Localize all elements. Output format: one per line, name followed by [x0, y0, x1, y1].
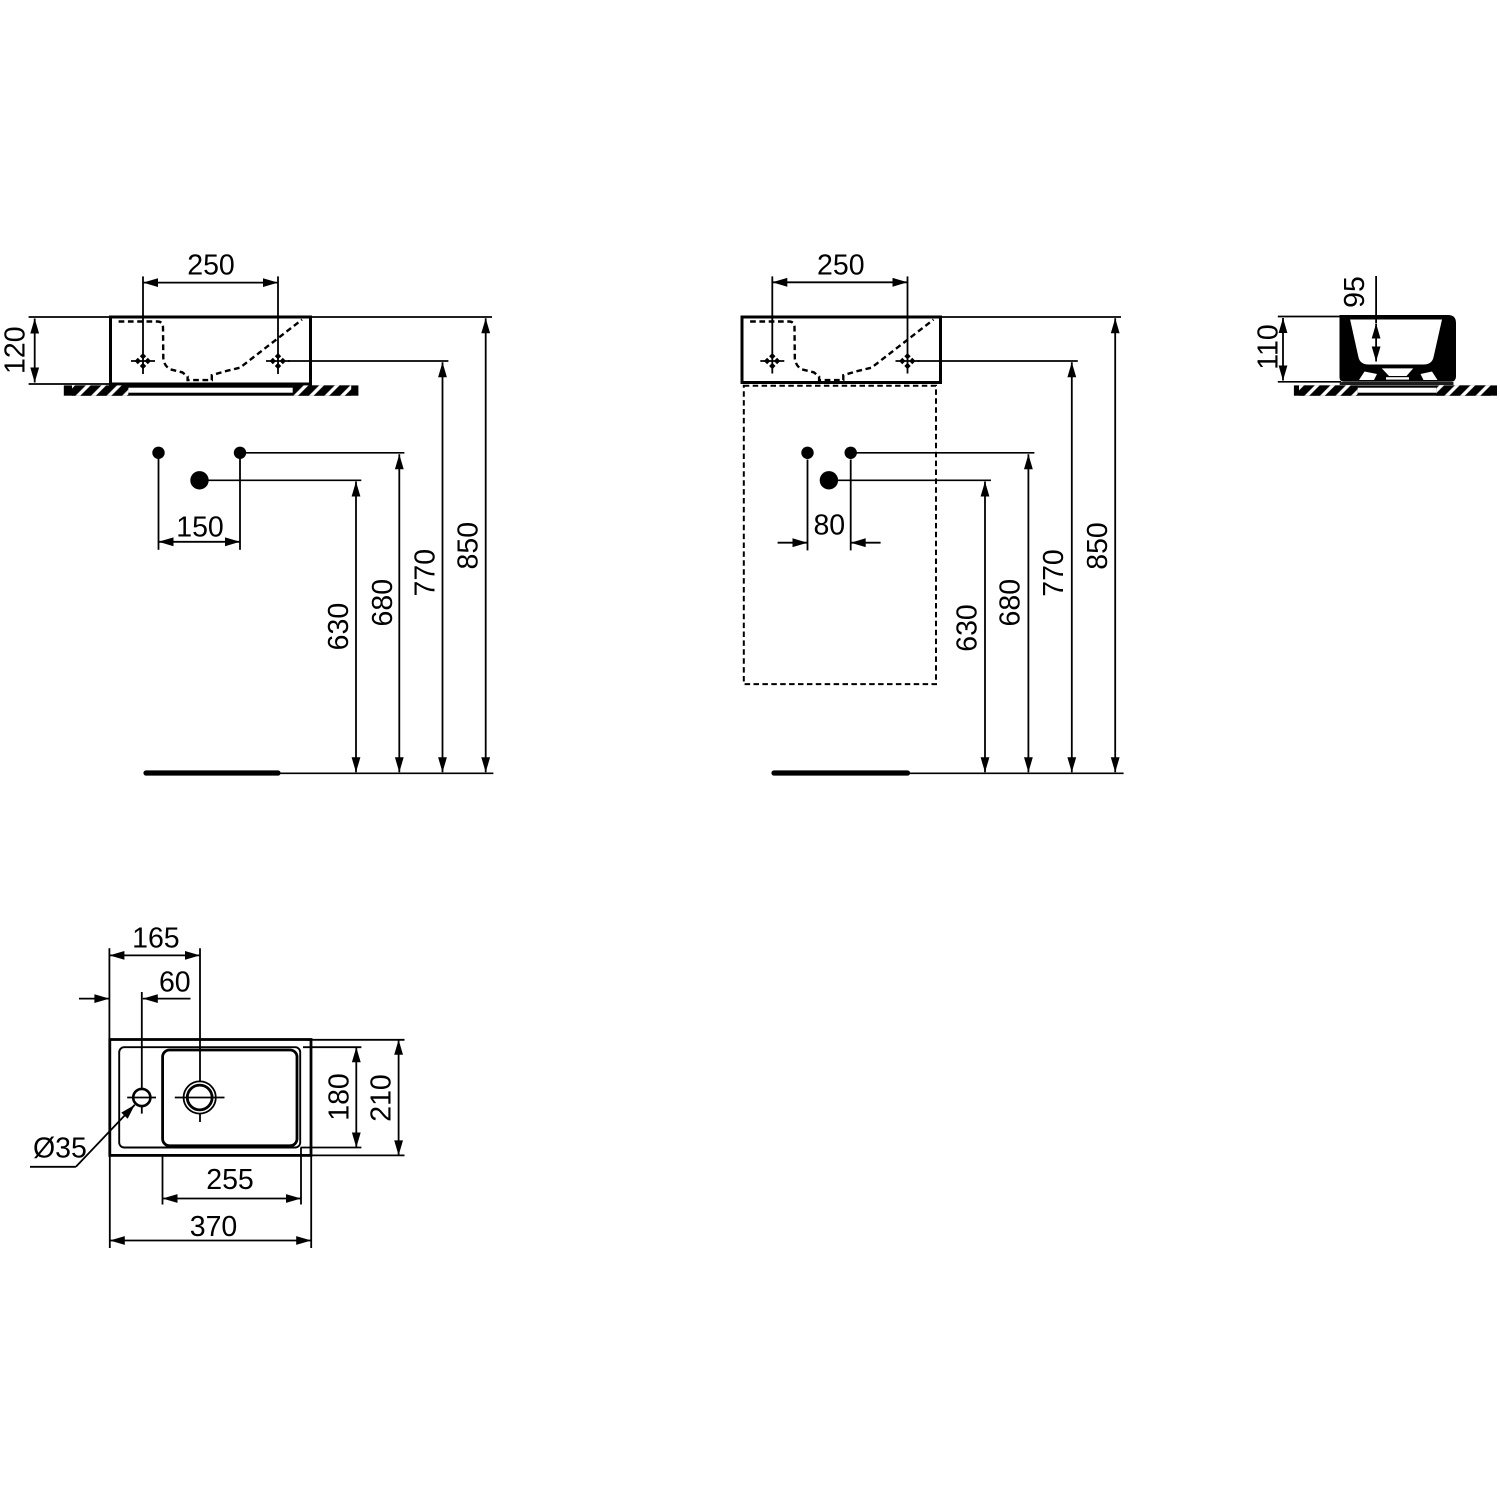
svg-text:60: 60	[159, 967, 191, 999]
svg-text:630: 630	[952, 604, 984, 652]
svg-text:850: 850	[452, 522, 484, 570]
svg-text:850: 850	[1082, 522, 1114, 570]
svg-text:80: 80	[813, 510, 845, 542]
svg-text:250: 250	[187, 249, 235, 281]
svg-text:630: 630	[323, 603, 355, 651]
svg-text:95: 95	[1339, 276, 1371, 308]
svg-text:210: 210	[366, 1074, 398, 1122]
svg-text:770: 770	[409, 549, 441, 597]
svg-text:370: 370	[190, 1211, 238, 1243]
svg-text:150: 150	[176, 511, 224, 543]
svg-text:120: 120	[0, 326, 31, 374]
svg-text:250: 250	[817, 249, 865, 281]
svg-text:Ø35: Ø35	[33, 1133, 87, 1165]
svg-text:680: 680	[994, 579, 1026, 627]
svg-text:180: 180	[324, 1073, 356, 1121]
svg-text:165: 165	[132, 923, 180, 955]
svg-text:680: 680	[367, 579, 399, 627]
svg-text:110: 110	[1252, 324, 1284, 369]
svg-text:255: 255	[206, 1164, 254, 1196]
svg-text:770: 770	[1038, 549, 1070, 597]
